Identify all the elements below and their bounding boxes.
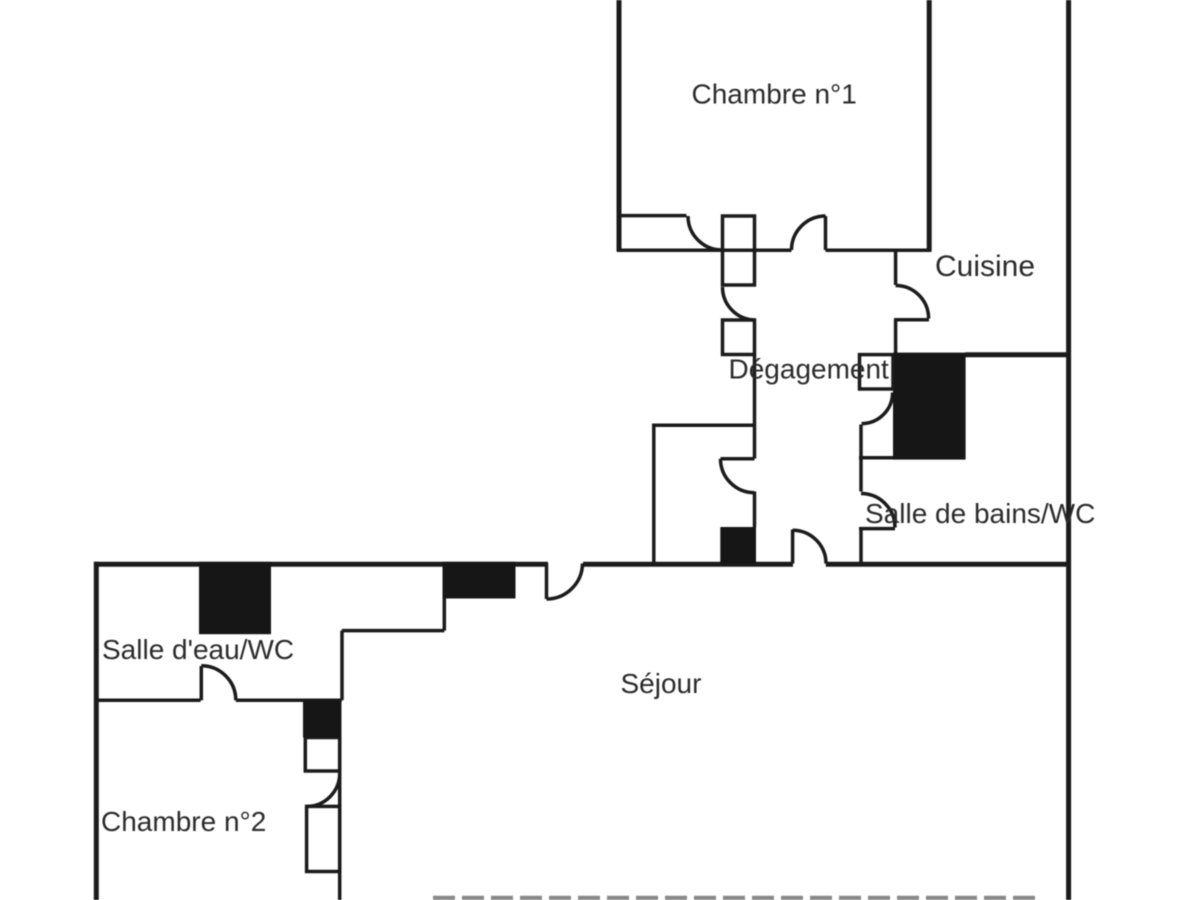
- svg-text:Salle de bains/WC: Salle de bains/WC: [865, 498, 1095, 529]
- svg-text:Dégagement: Dégagement: [729, 354, 890, 385]
- svg-text:Chambre n°1: Chambre n°1: [692, 79, 857, 110]
- svg-text:Séjour: Séjour: [621, 668, 702, 699]
- svg-text:Chambre n°2: Chambre n°2: [101, 806, 266, 837]
- svg-text:Cuisine: Cuisine: [935, 250, 1035, 283]
- svg-text:Salle d'eau/WC: Salle d'eau/WC: [102, 634, 294, 665]
